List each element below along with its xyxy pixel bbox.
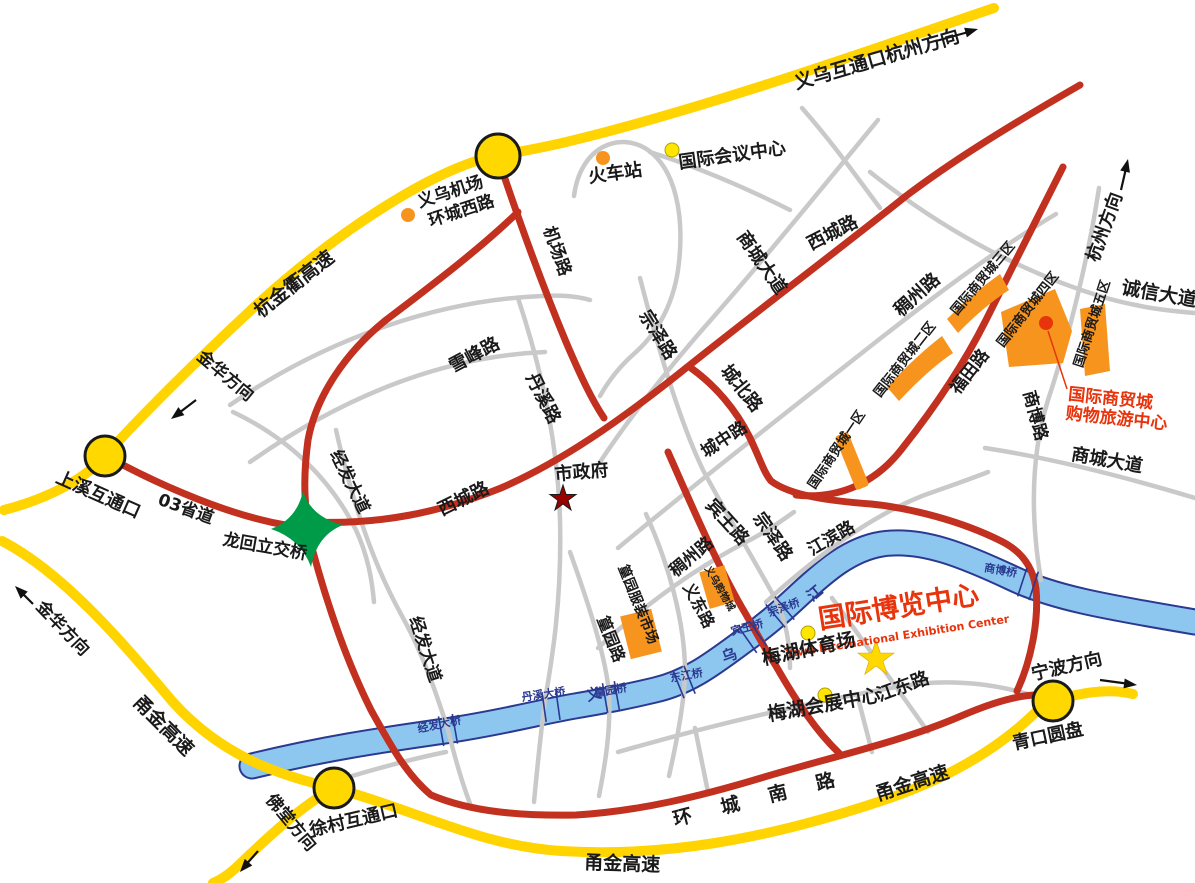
map-labels: 杭州方向 义乌互通口 国际会议中心 火车站 义乌机场 环城西路 机场路 杭金衢高… xyxy=(31,24,1195,876)
label-city-hall: 市政府 xyxy=(554,459,610,486)
label-xucun-interchange: 徐村互通口 xyxy=(306,799,400,841)
road-ne-cross xyxy=(802,108,880,208)
road-connector-1 xyxy=(695,728,708,792)
shangxi-interchange-circle xyxy=(85,436,125,476)
expressways xyxy=(2,8,1133,883)
label-hangzhou-direction-right: 杭州方向 xyxy=(1082,189,1127,264)
label-ningbo-direction: 宁波方向 xyxy=(1029,647,1104,685)
qingkou-roundabout-circle xyxy=(1033,681,1073,721)
label-xuefeng: 雪峰路 xyxy=(445,332,504,377)
yiwu-interchange-circle xyxy=(476,134,520,178)
label-conference-center: 国际会议中心 xyxy=(677,137,787,174)
train-station-dot xyxy=(596,151,610,165)
label-xicheng-center: 西城路 xyxy=(434,476,493,520)
trade-city-tourism-dot xyxy=(1039,316,1053,330)
label-yiwu-interchange: 义乌互通口 xyxy=(791,46,889,94)
label-jichang-road: 机场路 xyxy=(539,224,577,280)
label-chengzhong: 城中路 xyxy=(697,416,752,462)
label-hangjinqu-expwy: 杭金衢高速 xyxy=(249,246,338,323)
city-hall-star xyxy=(550,485,576,510)
yiwu-city-map: 杭州方向 义乌互通口 国际会议中心 火车站 义乌机场 环城西路 机场路 杭金衢高… xyxy=(0,0,1195,883)
road-xuefeng xyxy=(250,352,545,462)
label-jingfa-ave-upper: 经发大道 xyxy=(326,446,375,516)
label-chengbei: 城北路 xyxy=(716,360,768,417)
road-huangyuan xyxy=(570,552,609,796)
label-yongjin-bottom: 甬金高速 xyxy=(584,851,661,877)
label-jinhua-direction-nw: 金华方向 xyxy=(192,345,258,405)
label-yongjin-left: 甬金高速 xyxy=(129,690,199,760)
label-train-station: 火车站 xyxy=(587,158,644,187)
label-zongze-top: 宗泽路 xyxy=(634,306,682,364)
map-canvas: 杭州方向 义乌互通口 国际会议中心 火车站 义乌机场 环城西路 机场路 杭金衢高… xyxy=(0,0,1195,883)
road-jichang xyxy=(497,155,604,418)
airport-dot xyxy=(401,208,415,222)
label-danxi: 丹溪路 xyxy=(521,369,566,428)
label-xicheng-top: 西城路 xyxy=(803,210,862,255)
label-jingfa-ave-lower: 经发大道 xyxy=(405,614,446,685)
xucun-interchange-circle xyxy=(314,768,354,808)
label-yongjin-right: 甬金高速 xyxy=(872,760,951,805)
